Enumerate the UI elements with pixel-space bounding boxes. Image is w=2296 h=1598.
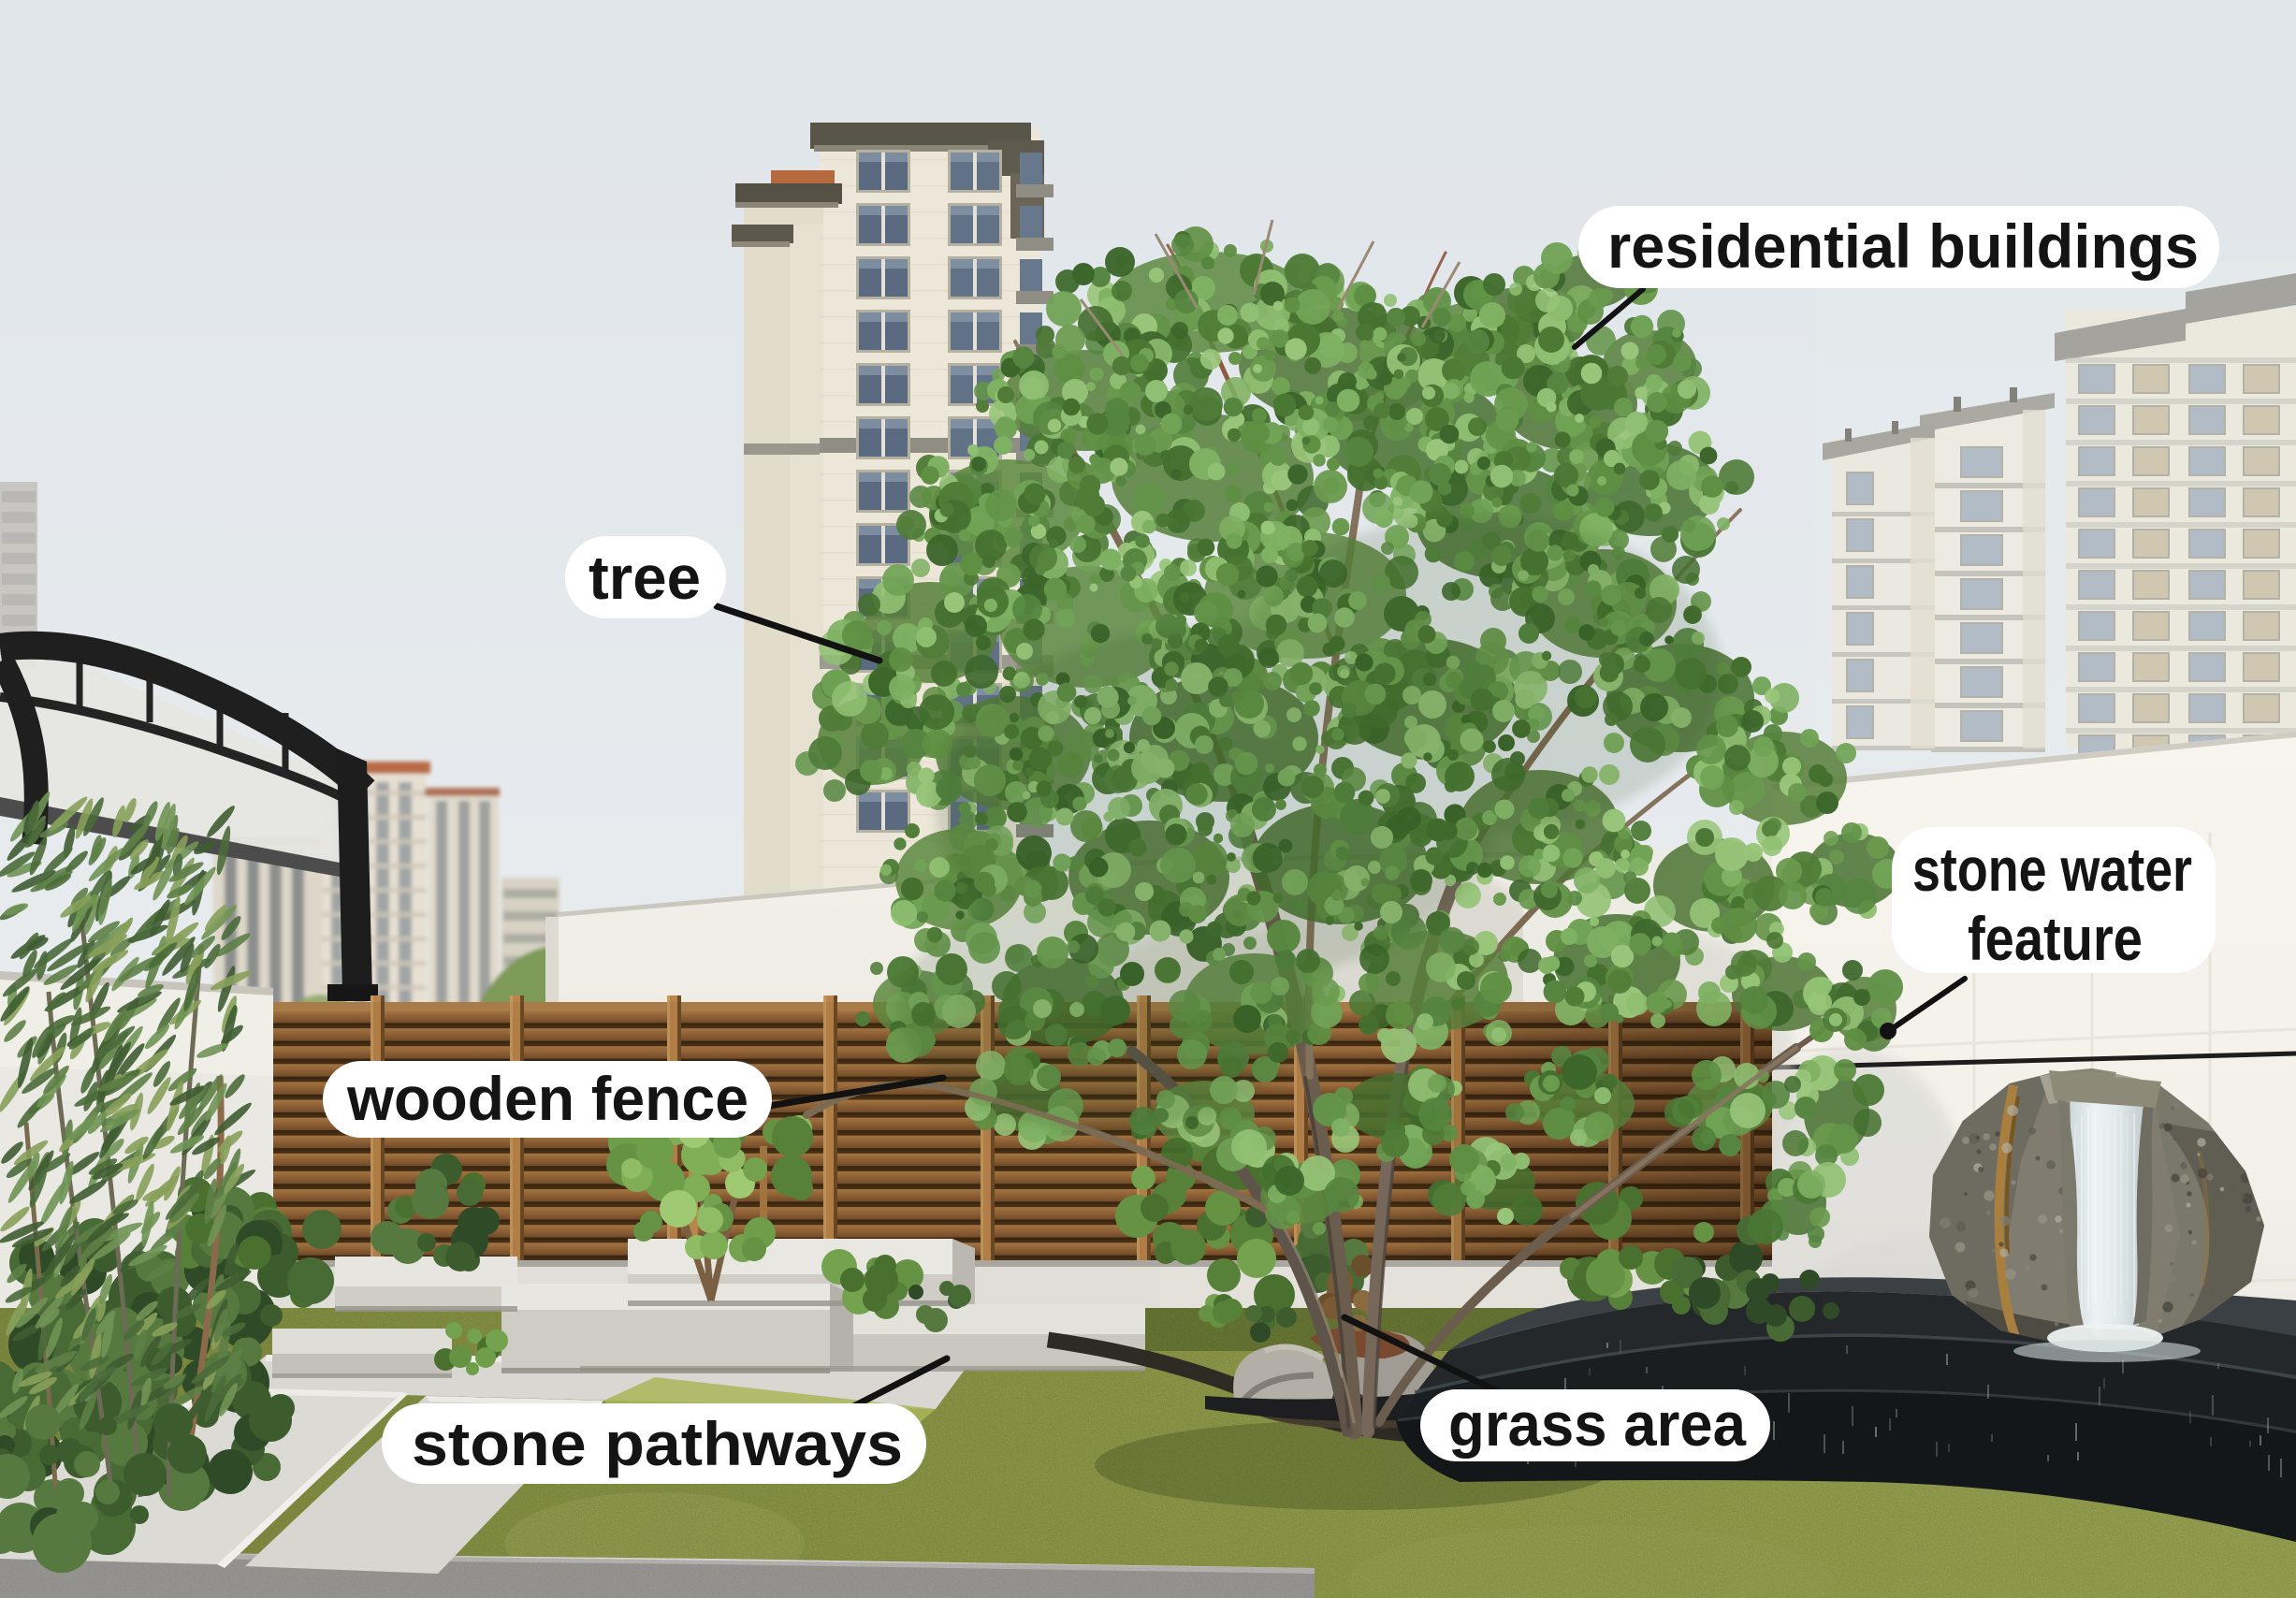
- svg-text:tree: tree: [589, 543, 701, 612]
- svg-text:feature: feature: [1968, 904, 2143, 973]
- svg-text:wooden fence: wooden fence: [346, 1064, 748, 1133]
- svg-text:stone water: stone water: [1912, 835, 2192, 904]
- svg-text:residential buildings: residential buildings: [1607, 211, 2199, 281]
- svg-text:stone pathways: stone pathways: [412, 1409, 903, 1478]
- svg-text:grass area: grass area: [1448, 1389, 1747, 1459]
